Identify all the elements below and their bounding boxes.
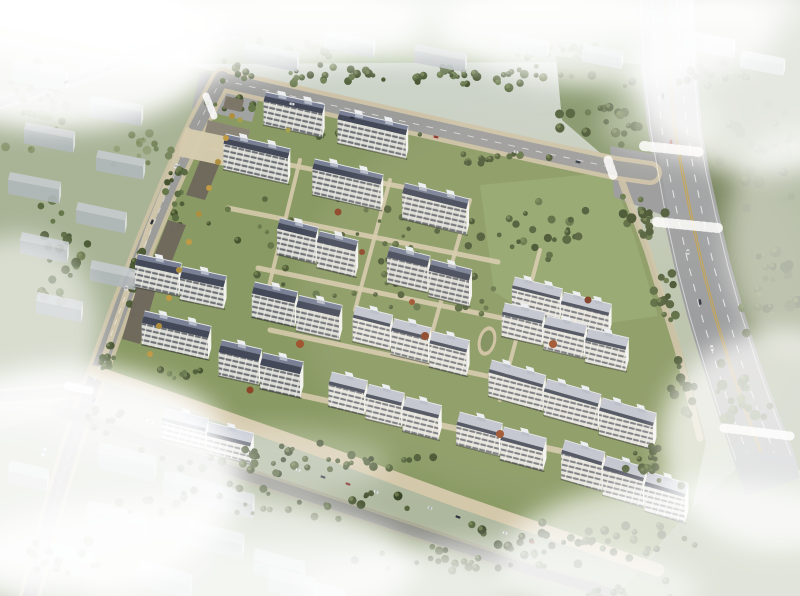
aerial-site-rendering xyxy=(0,0,800,596)
accent-tree xyxy=(196,211,202,217)
accent-tree xyxy=(296,340,304,348)
accent-tree xyxy=(206,185,212,191)
accent-tree xyxy=(223,135,229,141)
warm-light-glow xyxy=(300,100,800,500)
accent-tree xyxy=(229,113,235,119)
accent-tree xyxy=(147,351,153,357)
accent-tree xyxy=(166,295,172,301)
accent-tree xyxy=(156,323,162,329)
accent-tree xyxy=(247,387,254,394)
accent-tree xyxy=(176,267,182,273)
accent-tree xyxy=(285,127,290,132)
accent-tree xyxy=(215,159,221,165)
rendering-canvas xyxy=(0,0,800,596)
accent-tree xyxy=(237,117,242,122)
haze-patch xyxy=(170,427,390,497)
accent-tree xyxy=(186,239,192,245)
